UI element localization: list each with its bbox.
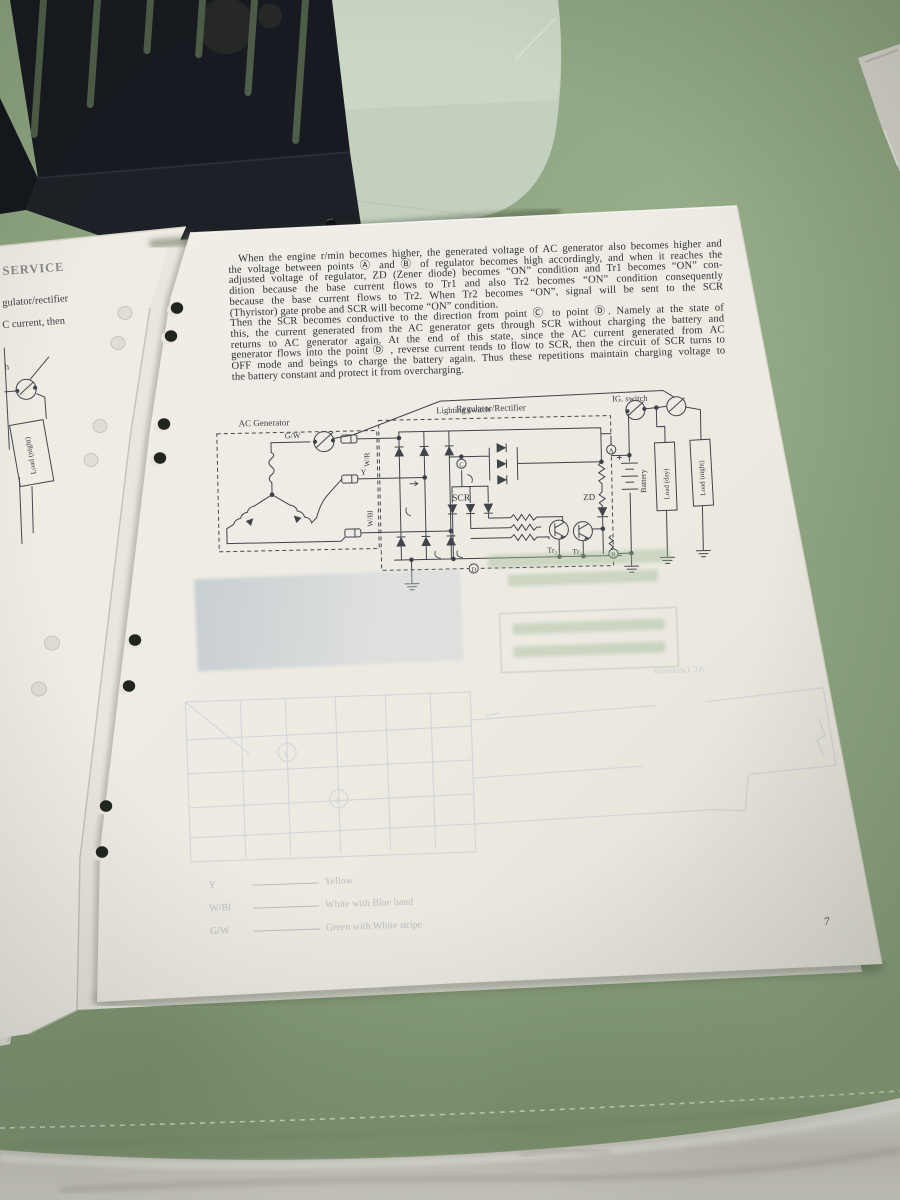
smudge-on-bookend [198,0,254,54]
y-wire-label: Y [361,468,367,477]
wbl-wire-label: W/Bl [365,510,374,526]
under-page-label-fragment: h [4,361,10,371]
point-d-label: D [471,566,476,573]
svg-text:Y: Y [283,749,289,758]
battery-symbol [616,414,639,572]
photo-of-service-manual-page: AC Generator Y Y SERVICE gulator/rectifi… [0,0,900,1200]
terminal-points-a-b [601,433,632,554]
svg-text:Y: Y [335,796,341,805]
regulator-rectifier-label: Regulator/Rectifier [456,402,526,413]
detection-diodes [449,442,602,487]
zd-label: ZD [583,492,596,502]
gw-wire-label: G/W [285,431,301,440]
battery-label: Battery [639,469,648,493]
show-through-green-box [499,607,679,673]
point-c-label: C [459,462,463,469]
show-through-blue-patch [194,568,464,671]
point-a-label: A [609,448,614,455]
white-tarp-top-right [858,44,900,172]
ac-generator-label: AC Generator [238,417,289,428]
wr-wire-label: W/R [362,452,371,466]
under-page-load-night-label: Load (night) [23,436,38,475]
charging-circuit-diagram: AC Generator G/W Lighting switch [208,384,784,608]
under-page-partial-diagram: h Load (night) [0,320,158,589]
stator-windings [225,441,345,543]
load-night-label: Load (night) [697,460,707,496]
page-number: 7 [824,916,830,928]
show-through-wire-color-legend: Y Yellow W/Bl White with Blue band G/W G… [208,857,570,937]
phase-terminals [341,433,451,537]
scr-label: SCR [452,494,471,504]
body-paragraph: When the engine r/min becomes higher, th… [228,239,726,383]
black-bookend [0,0,362,242]
load-day-label: Load (day) [662,468,671,500]
